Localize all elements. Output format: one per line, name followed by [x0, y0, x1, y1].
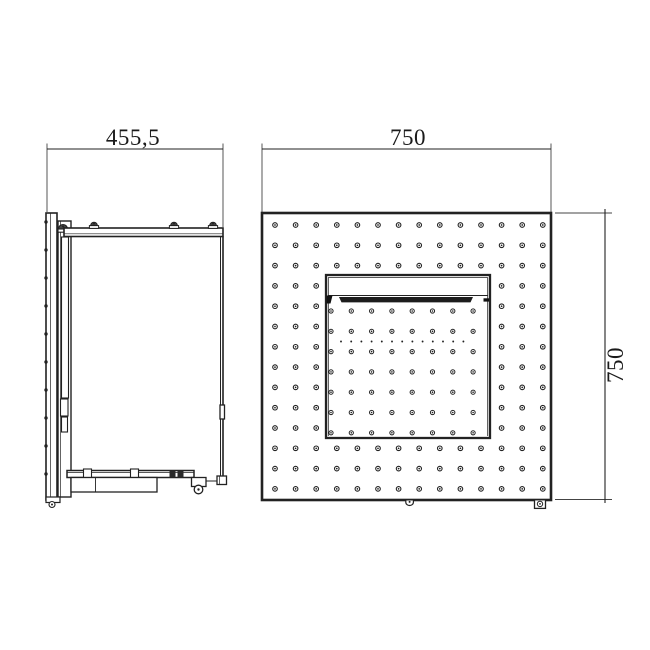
front-view-height-dimension-label: 750: [593, 342, 639, 388]
side-view-width-dimension-label: 455,5: [83, 126, 183, 150]
front-view-width-dimension-label: 750: [358, 126, 458, 150]
fireplace-two-view-drawing: [0, 0, 650, 650]
technical-drawing-page: 455,5 750 750: [0, 0, 650, 650]
